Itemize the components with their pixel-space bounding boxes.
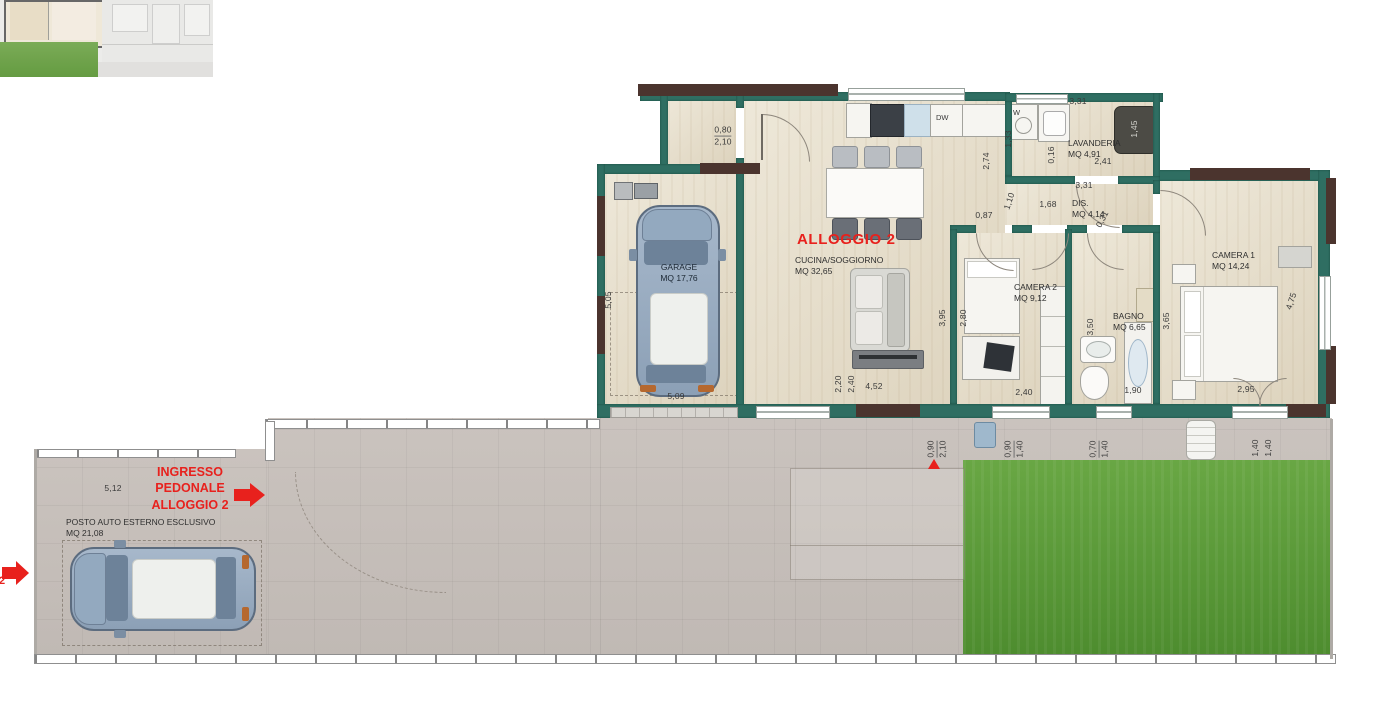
unit-number-label: 2 — [0, 575, 5, 587]
entrance-step — [790, 468, 965, 580]
room-area: MQ 6,65 — [1113, 322, 1146, 333]
dresser — [1278, 246, 1312, 268]
room-name: BAGNO — [1113, 311, 1146, 322]
side-fence — [265, 419, 600, 429]
utility-cabinet — [634, 183, 658, 199]
thumbnail-grass — [0, 42, 98, 77]
pillow — [1184, 291, 1201, 333]
wall-segment — [1065, 229, 1072, 404]
lintel-bar — [856, 404, 920, 417]
site-plan-thumbnail — [0, 0, 213, 77]
front-fence — [36, 449, 236, 458]
room-name: GARAGE — [640, 262, 718, 273]
sofa — [850, 268, 910, 352]
thumbnail-terrace — [98, 62, 213, 77]
thumbnail-room — [152, 4, 180, 44]
wardrobe-shelf — [1041, 316, 1067, 317]
room-label-camera1: CAMERA 1 MQ 14,24 — [1212, 250, 1255, 272]
room-label-bagno: BAGNO MQ 6,65 — [1113, 311, 1146, 333]
fence-post-corner — [265, 421, 275, 461]
toilet — [1080, 366, 1109, 400]
room-name: CAMERA 2 — [1014, 282, 1057, 293]
wall-segment — [1005, 176, 1075, 184]
door-leaf — [761, 114, 763, 160]
window-bedroom1-side — [1319, 276, 1331, 350]
parking-area: MQ 21,08 — [66, 528, 215, 539]
thumbnail-wall-line — [102, 44, 213, 45]
room-area: MQ 17,76 — [640, 273, 718, 284]
nightstand — [1172, 264, 1196, 284]
desk — [962, 336, 1020, 380]
kitchen-cabinet — [962, 104, 1006, 137]
parking-name: POSTO AUTO ESTERNO ESCLUSIVO — [66, 517, 215, 528]
wall-segment — [1153, 180, 1160, 194]
room-name: CUCINA/SOGGIORNO — [795, 255, 883, 266]
sofa-backrest — [887, 273, 905, 347]
lintel-bar — [597, 196, 605, 256]
door-entrance-arrow-icon — [928, 459, 940, 469]
thumbnail-room — [10, 2, 49, 40]
kitchen-sink — [904, 104, 932, 137]
room-area: MQ 32,65 — [795, 266, 883, 277]
room-label-garage: GARAGE MQ 17,76 — [640, 262, 718, 284]
room-label-lavanderia: LAVANDERIA MQ 4,91 — [1068, 138, 1121, 160]
car-taillight — [640, 385, 656, 392]
bed-double — [1180, 286, 1278, 382]
lintel-bar — [1326, 346, 1336, 404]
entrance-arrow-icon — [250, 483, 265, 507]
dining-chair — [896, 146, 922, 168]
lintel-bar — [638, 84, 838, 96]
garden-grass — [963, 460, 1332, 658]
lintel-bar — [1326, 178, 1336, 244]
room-name: DIS. — [1072, 198, 1105, 209]
window-laundry — [1016, 94, 1068, 104]
car-taillight — [242, 555, 249, 569]
thumbnail-room — [112, 4, 148, 32]
vestibule-floor — [668, 96, 736, 166]
washer-drum — [1015, 117, 1032, 134]
room-area: MQ 14,24 — [1212, 261, 1255, 272]
room-area: MQ 4,91 — [1068, 149, 1121, 160]
unit-arrow-icon — [16, 561, 29, 585]
room-area: MQ 9,12 — [1014, 293, 1057, 304]
car-rear-window — [646, 365, 706, 383]
lintel-bar — [1190, 168, 1310, 180]
car-roof — [132, 559, 216, 619]
wall-segment — [1012, 225, 1032, 233]
duvet-fold — [1203, 287, 1204, 381]
wall-segment — [736, 158, 744, 418]
kitchen-stove — [870, 104, 906, 137]
car-roof — [650, 293, 708, 365]
dining-chair — [896, 218, 922, 240]
wardrobe-shelf — [1041, 346, 1067, 347]
room-name: CAMERA 1 — [1212, 250, 1255, 261]
sink-bowl — [1086, 341, 1111, 358]
french-door-bedroom1 — [1232, 406, 1288, 419]
pavement-joint — [600, 418, 601, 658]
lintel-bar — [700, 163, 760, 174]
lintel-bar — [1286, 404, 1326, 417]
dining-chair — [832, 146, 858, 168]
room-name: LAVANDERIA — [1068, 138, 1121, 149]
apartment-title: ALLOGGIO 2 — [797, 231, 896, 248]
parking-label: POSTO AUTO ESTERNO ESCLUSIVO MQ 21,08 — [66, 517, 215, 539]
room-label-camera2: CAMERA 2 MQ 9,12 — [1014, 282, 1057, 304]
wardrobe-shelf — [1041, 376, 1067, 377]
lintel-bar — [597, 296, 605, 354]
sun-lounger — [1186, 420, 1216, 460]
window-bedroom2 — [992, 406, 1050, 419]
window-bathroom — [1096, 406, 1132, 419]
car-mirror — [114, 540, 126, 548]
dishwasher-label: DW — [936, 113, 949, 122]
tv-screen — [859, 355, 917, 359]
tub-basin — [1128, 339, 1148, 387]
tv-cabinet — [852, 350, 924, 369]
wall-segment — [1153, 93, 1160, 181]
car-hood — [74, 553, 106, 625]
car-rear-window — [216, 557, 236, 619]
dining-chair — [864, 146, 890, 168]
car-hood — [642, 209, 712, 241]
entrance-line: PEDONALE — [138, 480, 242, 496]
room-label-cucina: CUCINA/SOGGIORNO MQ 32,65 — [795, 255, 883, 277]
shower-tub — [1124, 322, 1152, 404]
washer-label: W — [1013, 108, 1020, 117]
thumbnail-room — [184, 4, 210, 36]
window-kitchen — [848, 88, 965, 101]
meter-box — [614, 182, 633, 200]
nightstand — [1172, 380, 1196, 400]
kitchen-cabinet — [846, 103, 872, 138]
wall-segment — [660, 88, 668, 170]
laundry-sink — [1038, 104, 1070, 142]
sink-basin — [1043, 111, 1066, 136]
wall-segment — [1005, 101, 1012, 176]
car-garage — [636, 205, 720, 397]
room-label-dis: DIS. MQ 4,14 — [1072, 198, 1105, 220]
floor-plan-canvas: DW W — [0, 0, 1400, 727]
car-taillight — [242, 607, 249, 621]
sofa-cushion — [855, 275, 883, 309]
garage-door — [610, 407, 738, 418]
ac-unit — [974, 422, 996, 448]
entrance-line: INGRESSO — [138, 464, 242, 480]
sofa-cushion — [855, 311, 883, 345]
dining-table — [826, 168, 924, 218]
car-mirror — [718, 249, 726, 261]
room-area: MQ 4,14 — [1072, 209, 1105, 220]
pedestrian-entrance-label: INGRESSO PEDONALE ALLOGGIO 2 — [138, 464, 242, 513]
car-parking — [70, 547, 256, 631]
pillow — [1184, 335, 1201, 377]
monitor — [983, 342, 1014, 372]
entrance-line: ALLOGGIO 2 — [138, 497, 242, 513]
bathroom-sink — [1080, 336, 1116, 363]
wall-segment — [1153, 232, 1160, 404]
car-taillight — [698, 385, 714, 392]
car-mirror — [114, 630, 126, 638]
plot-fence-bottom — [34, 654, 1336, 664]
thumbnail-room — [52, 2, 96, 40]
plot-boundary-left — [34, 449, 37, 659]
car-windshield — [106, 555, 128, 621]
wall-segment — [950, 229, 957, 404]
window-living — [756, 406, 830, 419]
entrance-step-edge — [790, 545, 963, 546]
car-mirror — [629, 249, 637, 261]
plot-boundary-right — [1330, 419, 1333, 659]
